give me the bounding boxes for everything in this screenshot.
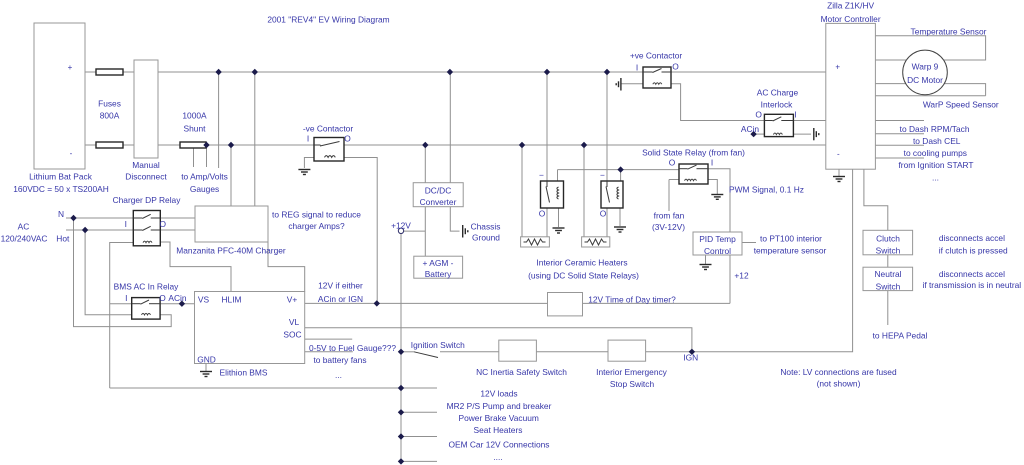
svg-text:Disconnect: Disconnect (125, 172, 167, 182)
svg-text:O: O (159, 293, 166, 303)
svg-text:ACin or IGN: ACin or IGN (318, 294, 363, 304)
svg-text:to REG signal to reduce: to REG signal to reduce (272, 210, 361, 220)
svg-text:I: I (636, 63, 638, 73)
svg-text:WarP Speed Sensor: WarP Speed Sensor (923, 100, 999, 110)
svg-text:Elithion BMS: Elithion BMS (220, 368, 268, 378)
svg-text:...: ... (335, 370, 342, 380)
svg-text:ACin: ACin (741, 124, 759, 134)
svg-text:120/240VAC: 120/240VAC (1, 234, 48, 244)
svg-text:NC Inertia Safety Switch: NC Inertia Safety Switch (476, 367, 567, 377)
svg-text:Note: LV connections are fused: Note: LV connections are fused (780, 367, 897, 377)
svg-text:I: I (711, 158, 713, 168)
svg-text:Battery: Battery (425, 269, 452, 279)
svg-text:DC/DC: DC/DC (425, 186, 452, 196)
svg-text:to HEPA Pedal: to HEPA Pedal (873, 331, 928, 341)
svg-text:BMS AC In Relay: BMS AC In Relay (114, 282, 180, 292)
svg-text:Motor Controller: Motor Controller (821, 14, 881, 24)
svg-text:Gauges: Gauges (190, 184, 219, 194)
svg-text:GND: GND (197, 355, 216, 365)
svg-text:Control: Control (704, 246, 731, 256)
svg-text:Switch: Switch (876, 246, 901, 256)
svg-text:Shunt: Shunt (184, 124, 207, 134)
svg-text:disconnects accel: disconnects accel (939, 269, 1005, 279)
svg-text:Power Brake Vacuum: Power Brake Vacuum (459, 413, 539, 423)
svg-text:Neutral: Neutral (875, 269, 902, 279)
svg-text:Manzanita PFC-40M Charger: Manzanita PFC-40M Charger (176, 246, 286, 256)
svg-text:Interior Ceramic Heaters: Interior Ceramic Heaters (536, 258, 627, 268)
svg-text:....: .... (493, 452, 502, 462)
svg-text:Chassis: Chassis (471, 222, 501, 232)
svg-text:Warp 9: Warp 9 (912, 62, 939, 72)
svg-text:1000A: 1000A (182, 111, 207, 121)
svg-text:PWM Signal, 0.1 Hz: PWM Signal, 0.1 Hz (729, 185, 804, 195)
svg-text:Fuses: Fuses (98, 99, 121, 109)
svg-text:IGN: IGN (683, 353, 698, 363)
svg-text:O: O (539, 208, 546, 218)
svg-text:+ve Contactor: +ve Contactor (630, 51, 683, 61)
svg-text:800A: 800A (100, 111, 120, 121)
svg-text:O: O (600, 208, 607, 218)
svg-text:OEM Car 12V Connections: OEM Car 12V Connections (448, 440, 549, 450)
svg-text:Seat Heaters: Seat Heaters (474, 425, 523, 435)
svg-text:to battery fans: to battery fans (313, 355, 366, 365)
svg-text:O: O (672, 62, 679, 72)
svg-text:+: + (68, 63, 73, 72)
svg-text:Switch: Switch (876, 282, 901, 292)
svg-text:Interior Emergency: Interior Emergency (596, 367, 668, 377)
svg-text:-ve Contactor: -ve Contactor (303, 124, 353, 134)
svg-text:Converter: Converter (420, 197, 457, 207)
svg-text:(not shown): (not shown) (817, 379, 861, 389)
svg-text:VL: VL (289, 317, 300, 327)
svg-text:I: I (794, 110, 796, 120)
svg-text:Solid State Relay (from fan): Solid State Relay (from fan) (642, 148, 745, 158)
svg-text:O: O (344, 134, 351, 144)
svg-text:Hot: Hot (56, 234, 70, 244)
svg-text:Charger DP Relay: Charger DP Relay (113, 195, 182, 205)
svg-text:to Dash RPM/Tach: to Dash RPM/Tach (900, 124, 970, 134)
svg-text:MR2 P/S Pump and breaker: MR2 P/S Pump and breaker (447, 401, 552, 411)
svg-text:to Amp/Volts: to Amp/Volts (181, 172, 228, 182)
svg-text:N: N (58, 209, 64, 219)
svg-text:...: ... (932, 173, 939, 183)
svg-text:if transmission is in neutral: if transmission is in neutral (922, 280, 1021, 290)
svg-text:-: - (70, 149, 73, 158)
svg-text:2001 "REV4" EV Wiring Diagram: 2001 "REV4" EV Wiring Diagram (267, 15, 389, 25)
svg-text:Lithium Bat Pack: Lithium Bat Pack (29, 172, 93, 182)
svg-text:−: − (539, 170, 544, 180)
svg-text:charger Amps?: charger Amps? (288, 221, 345, 231)
svg-text:+12: +12 (734, 271, 749, 281)
svg-text:I: I (307, 134, 309, 144)
svg-text:V+: V+ (287, 295, 298, 305)
svg-text:O: O (755, 110, 762, 120)
svg-text:12V loads: 12V loads (480, 389, 517, 399)
svg-text:160VDC = 50 x TS200AH: 160VDC = 50 x TS200AH (13, 184, 109, 194)
svg-text:+12V: +12V (391, 221, 411, 231)
svg-text:O: O (160, 219, 167, 229)
svg-text:(3V-12V): (3V-12V) (652, 222, 685, 232)
svg-text:HLIM: HLIM (221, 295, 241, 305)
svg-text:+: + (835, 63, 840, 72)
svg-text:DC Motor: DC Motor (907, 75, 943, 85)
svg-text:from fan: from fan (654, 211, 685, 221)
svg-text:AC: AC (18, 222, 30, 232)
svg-text:I: I (125, 293, 127, 303)
svg-text:VS: VS (198, 295, 210, 305)
svg-text:I: I (125, 219, 127, 229)
svg-text:Ignition Switch: Ignition Switch (411, 340, 465, 350)
svg-text:12V Time of Day timer?: 12V Time of Day timer? (588, 295, 676, 305)
svg-text:O: O (669, 158, 676, 168)
svg-text:12V if either: 12V if either (318, 281, 363, 291)
svg-text:0-5V to Fuel Gauge???: 0-5V to Fuel Gauge??? (309, 343, 396, 353)
svg-text:Stop Switch: Stop Switch (610, 379, 655, 389)
svg-text:Clutch: Clutch (876, 234, 900, 244)
svg-text:Manual: Manual (132, 160, 160, 170)
svg-text:temperature sensor: temperature sensor (754, 246, 827, 256)
svg-text:Ground: Ground (472, 233, 500, 243)
svg-text:SOC: SOC (283, 330, 301, 340)
svg-text:to Dash CEL: to Dash CEL (913, 136, 961, 146)
svg-text:if clutch is pressed: if clutch is pressed (939, 246, 1008, 256)
svg-text:PID Temp: PID Temp (699, 234, 736, 244)
svg-text:Interlock: Interlock (761, 100, 793, 110)
svg-text:disconnects accel: disconnects accel (939, 233, 1005, 243)
svg-text:ACin: ACin (168, 293, 186, 303)
svg-text:to cooling pumps: to cooling pumps (904, 148, 967, 158)
svg-text:+ AGM -: + AGM - (423, 258, 454, 268)
svg-text:from Ignition START: from Ignition START (898, 160, 973, 170)
svg-text:Zilla Z1K/HV: Zilla Z1K/HV (827, 1, 874, 11)
svg-text:−: − (600, 170, 605, 180)
svg-text:to PT100 interior: to PT100 interior (760, 234, 822, 244)
svg-text:-: - (837, 150, 840, 159)
svg-text:(using DC Solid State Relays): (using DC Solid State Relays) (528, 271, 639, 281)
svg-text:AC Charge: AC Charge (757, 88, 799, 98)
svg-text:Temperature Sensor: Temperature Sensor (911, 27, 987, 37)
